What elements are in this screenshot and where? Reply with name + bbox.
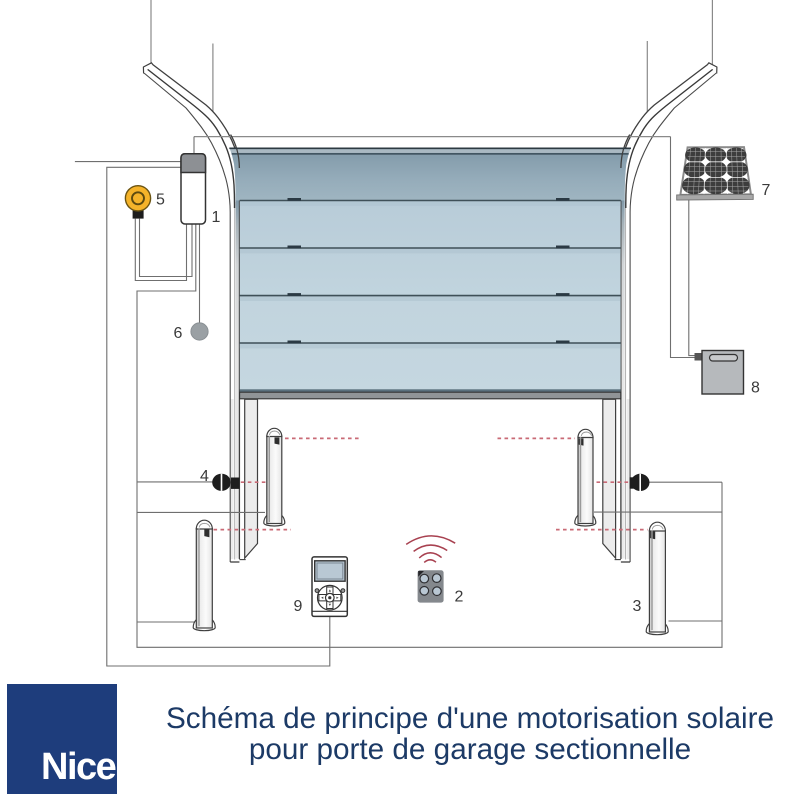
svg-text:1: 1: [212, 209, 221, 226]
svg-text:2: 2: [455, 589, 464, 606]
svg-text:3: 3: [633, 598, 642, 615]
svg-text:4: 4: [200, 468, 209, 485]
svg-text:8: 8: [751, 380, 760, 397]
svg-text:5: 5: [156, 192, 165, 209]
svg-text:6: 6: [174, 325, 183, 342]
svg-text:7: 7: [762, 182, 771, 199]
svg-text:9: 9: [294, 598, 303, 615]
